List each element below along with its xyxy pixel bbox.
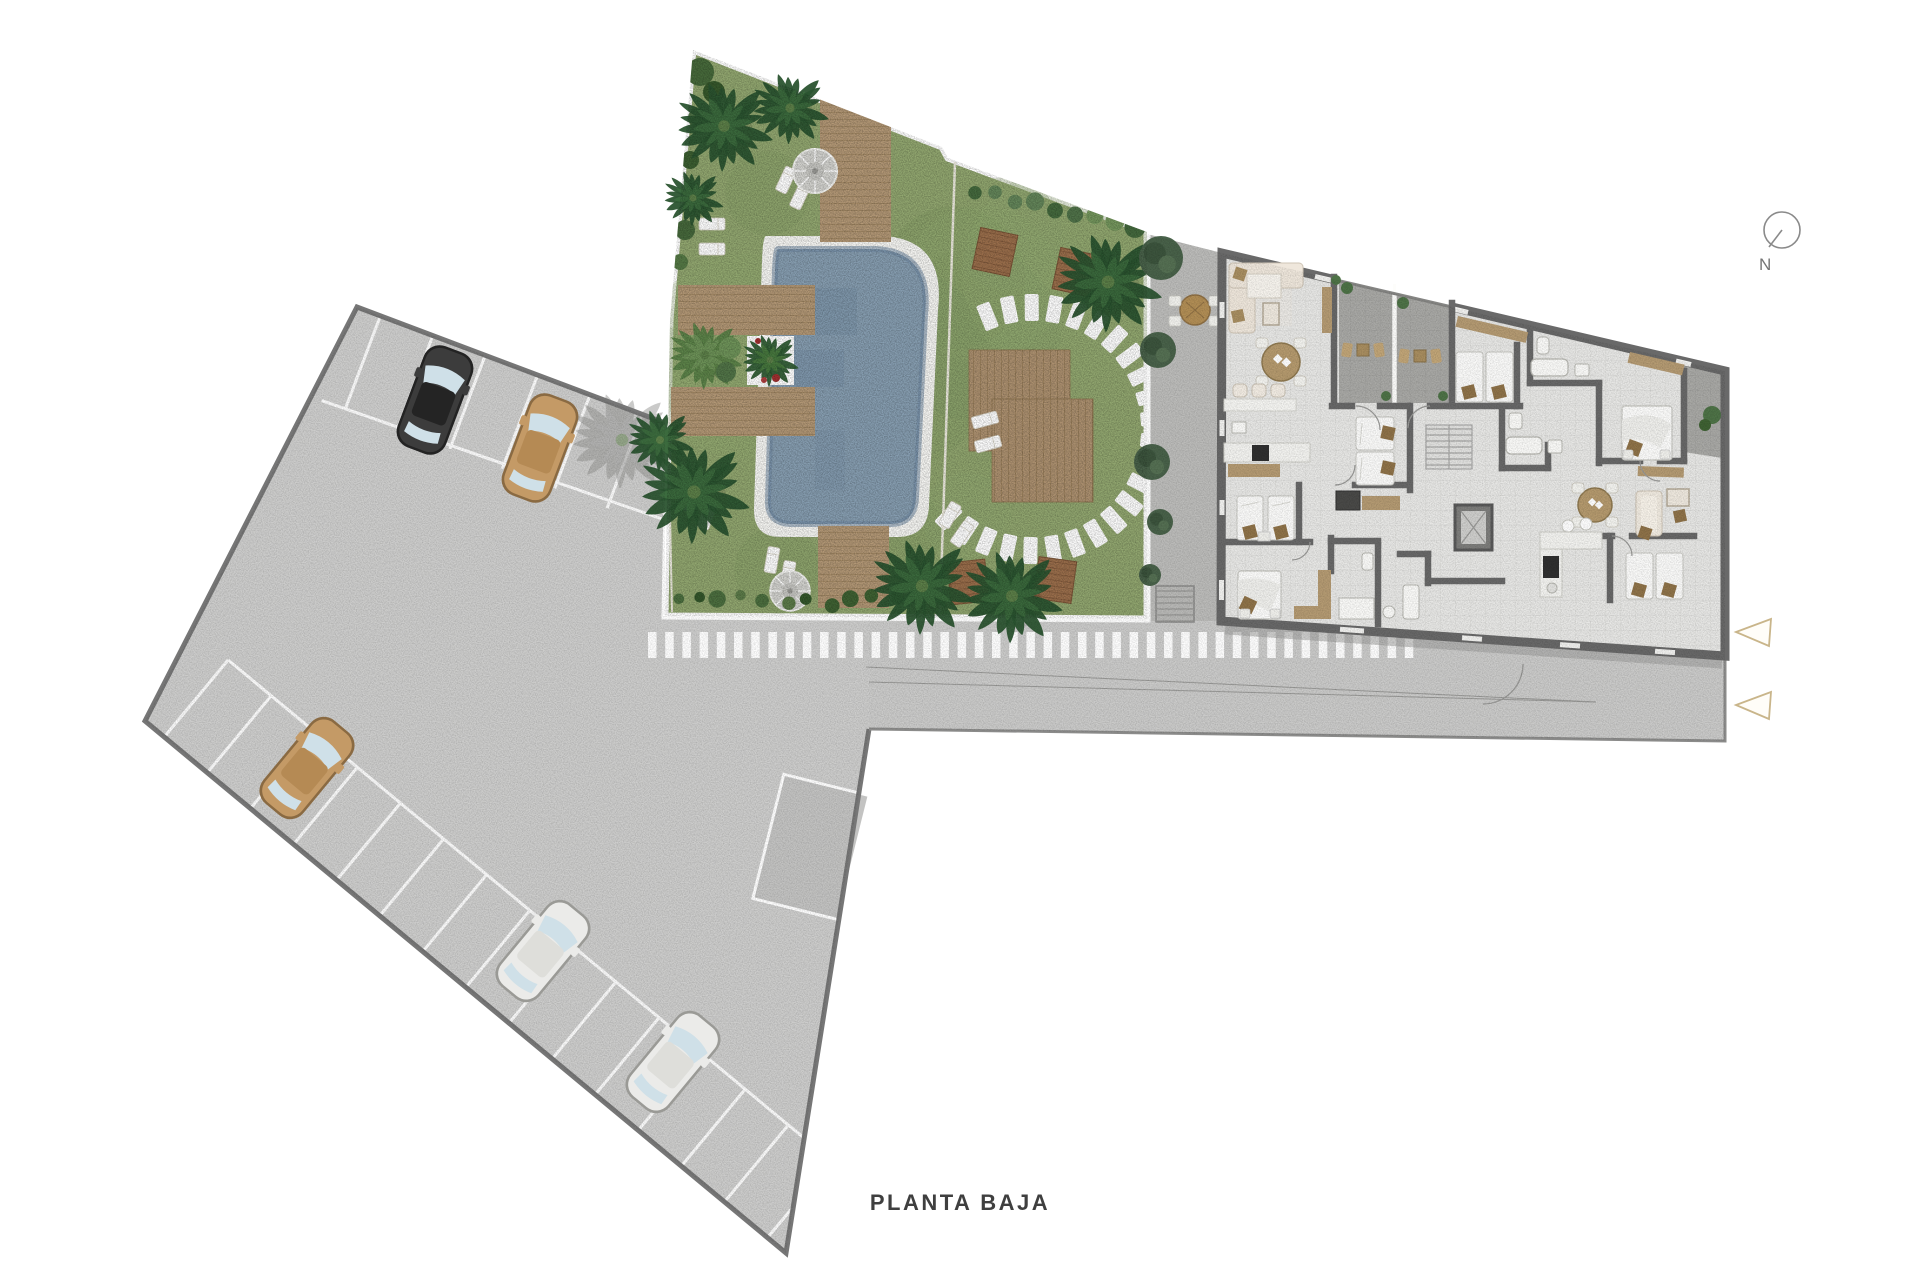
svg-text:N: N: [1759, 255, 1771, 274]
svg-text:PLANTA BAJA: PLANTA BAJA: [870, 1190, 1050, 1215]
